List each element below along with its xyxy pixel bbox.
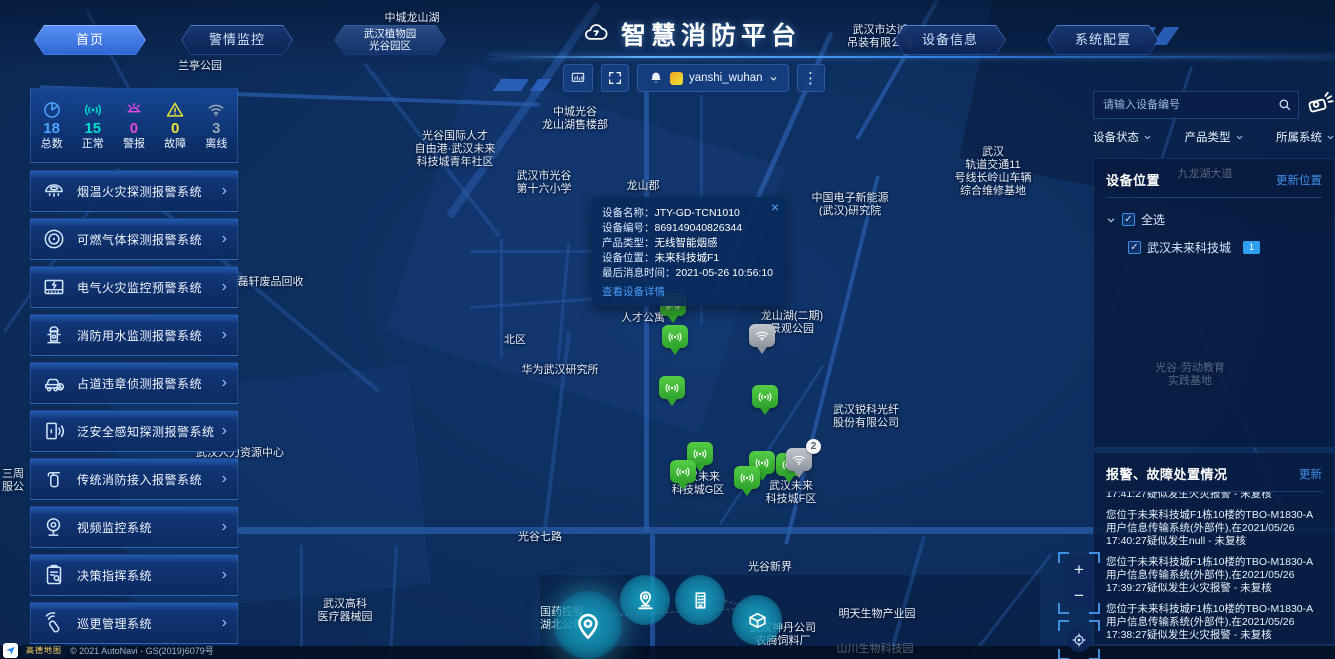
filter-dropdown-3[interactable]: 所属系统 (1276, 129, 1335, 145)
nav-button-face: 警情监控 (182, 26, 292, 54)
device-marker-online[interactable] (662, 325, 688, 348)
map-label: 三周 服公 (2, 468, 24, 494)
device-info-popup: × 设备名称：JTY-GD-TCN1010设备编号：86914904082634… (592, 197, 785, 306)
map-label: 武汉高科 医疗器械园 (318, 598, 373, 624)
building-poi[interactable] (675, 575, 725, 625)
tree-label: 全选 (1141, 211, 1165, 228)
chevron-right-icon: › (222, 183, 227, 199)
device-search-row (1093, 91, 1335, 119)
sidebar-item-5[interactable]: 占道违章侦测报警系统› (30, 362, 238, 404)
sidebar-item-7[interactable]: 传统消防接入报警系统› (30, 458, 238, 500)
device-marker-offline[interactable]: 2 (786, 448, 812, 471)
device-info-row: 设备编号：869149040826344 (602, 221, 773, 236)
sidebar-item-label: 巡更管理系统 (77, 615, 222, 632)
nav-button-2[interactable]: 警情监控 (181, 25, 293, 55)
locate-button[interactable] (1067, 628, 1091, 652)
stat-label: 正常 (74, 137, 112, 151)
alert-item[interactable]: 您位于未来科技城F1栋10楼的TBO-M1830-A用户信息传输系统(外部件),… (1106, 603, 1322, 642)
map-label: 兰亭公园 (178, 60, 222, 73)
stat-label: 故障 (156, 137, 194, 151)
chevron-right-icon: › (222, 615, 227, 631)
device-stats-panel: 18总数15正常0警报0故障3离线 (30, 88, 238, 163)
stat-value: 0 (115, 120, 153, 137)
nav-label: 武汉植物园 光谷园区 (364, 28, 417, 52)
nav-label: 设备信息 (922, 33, 978, 47)
field-value: 869149040826344 (655, 221, 743, 236)
field-value: 2021-05-26 10:56:10 (676, 266, 774, 281)
nav-button-1[interactable]: 首页 (34, 25, 146, 55)
field-label: 设备位置： (602, 251, 655, 266)
tree-label: 武汉未来科技城 (1147, 239, 1231, 256)
map-label: 柯磊轩废品回收 (227, 276, 304, 289)
sidebar-item-3[interactable]: 电气火灾监控预警系统› (30, 266, 238, 308)
camera-beacon-button[interactable] (1307, 91, 1335, 119)
sidebar-item-1[interactable]: 烟温火灾探测报警系统› (30, 170, 238, 212)
search-box (1093, 91, 1299, 119)
cluster-badge: 2 (806, 439, 821, 454)
map-road (855, 0, 938, 140)
alert-item[interactable]: 您位于未来科技城F1栋10楼的TBO-M1830-A用户信息传输系统(外部件),… (1106, 492, 1322, 501)
chevron-down-icon (1106, 215, 1116, 225)
device-info-row: 最后消息时间：2021-05-26 10:56:10 (602, 266, 773, 281)
sidebar-item-4[interactable]: 消防用水监测报警系统› (30, 314, 238, 356)
nav-button-face: 设备信息 (895, 26, 1005, 54)
sidebar-item-label: 泛安全感知探测报警系统 (77, 423, 222, 440)
amap-wordmark: 高德地图 (22, 644, 66, 657)
field-label: 产品类型： (602, 236, 655, 251)
map-label: 武汉锐科光纤 股份有限公司 (833, 404, 899, 430)
crosshair-icon (1071, 632, 1087, 648)
map-label: 武汉未来 科技城F区 (766, 480, 817, 506)
boxes-poi[interactable] (732, 595, 782, 645)
alerts-panel: 报警、故障处置情况 更新 您位于未来科技城F1栋10楼的TBO-M1830-A用… (1093, 452, 1335, 645)
map-label: 中国电子新能源 (武汉)研究院 (812, 192, 889, 218)
fullscreen-button[interactable] (601, 64, 629, 92)
page-title: 智慧消防平台 (621, 16, 801, 52)
chevron-right-icon: › (222, 423, 227, 439)
tree-row-select-all[interactable]: 全选 (1106, 211, 1322, 228)
view-device-details-link[interactable]: 查看设备详情 (602, 284, 665, 299)
filter-dropdown-1[interactable]: 设备状态 (1093, 129, 1152, 145)
nav-button-3[interactable]: 武汉植物园 光谷园区 (334, 25, 446, 55)
sidebar-item-label: 传统消防接入报警系统 (77, 471, 222, 488)
bar-chart-icon (570, 70, 586, 86)
checkbox-node[interactable] (1128, 241, 1141, 254)
panel-title: 报警、故障处置情况 (1106, 464, 1228, 483)
field-label: 设备编号： (602, 221, 655, 236)
panel-header: 设备位置 更新位置 (1106, 170, 1322, 198)
stat-label: 警报 (115, 137, 153, 151)
device-marker-online[interactable] (670, 460, 696, 483)
map-road (644, 92, 649, 532)
sidebar-item-6[interactable]: 泛安全感知探测报警系统› (30, 410, 238, 452)
nav-label: 系统配置 (1075, 33, 1131, 47)
device-info-row: 产品类型：无线智能烟感 (602, 236, 773, 251)
stat-正常: 15正常 (74, 100, 112, 151)
stat-离线: 3离线 (197, 100, 235, 151)
bell-icon (648, 70, 664, 86)
sidebar-item-label: 决策指挥系统 (77, 567, 222, 584)
signal-icon (74, 100, 112, 120)
chevron-right-icon: › (222, 231, 227, 247)
pinbase-poi[interactable] (620, 575, 670, 625)
stat-value: 15 (74, 120, 112, 137)
user-menu[interactable]: yanshi_wuhan (637, 64, 789, 92)
update-location-link[interactable]: 更新位置 (1276, 172, 1322, 188)
cloud-logo-icon (580, 21, 612, 47)
alert-list[interactable]: 您位于未来科技城F1栋10楼的TBO-M1830-A用户信息传输系统(外部件),… (1106, 492, 1322, 642)
map-toolbar: yanshi_wuhan ⋮ (563, 64, 825, 92)
chevron-down-icon (1235, 133, 1244, 142)
nav-button-face: 首页 (35, 26, 145, 54)
stat-警报: 0警报 (115, 100, 153, 151)
sensor-icon (41, 418, 67, 444)
nav-label: 警情监控 (209, 33, 265, 47)
sidebar-item-10[interactable]: 巡更管理系统› (30, 602, 238, 644)
decor-stripe (530, 79, 551, 91)
field-label: 最后消息时间： (602, 266, 676, 281)
pin-poi[interactable] (554, 591, 622, 659)
zoom-bracket: + − (1058, 552, 1100, 614)
chevron-right-icon: › (222, 567, 227, 583)
alarm-icon (115, 100, 153, 120)
sidebar-item-label: 可燃气体探测报警系统 (77, 231, 222, 248)
nav-button-4[interactable]: 设备信息 (894, 25, 1006, 55)
header-divider (488, 56, 1335, 58)
smoke-icon (41, 178, 67, 204)
patrol-icon (41, 610, 67, 636)
chevron-right-icon: › (222, 375, 227, 391)
map-road (500, 238, 503, 358)
sidebar-item-2[interactable]: 可燃气体探测报警系统› (30, 218, 238, 260)
pie-icon (33, 100, 71, 120)
alert-item[interactable]: 您位于未来科技城F1栋10楼的TBO-M1830-A用户信息传输系统(外部件),… (1106, 556, 1322, 595)
paper-plane-icon (5, 645, 16, 656)
count-badge: 1 (1243, 241, 1260, 254)
smart-fire-platform: 中城龙山湖兰亭公园武汉市达诚 吊装有限公司中城光谷 龙山湖售楼部光谷国际人才 自… (0, 0, 1335, 659)
wifi-icon (197, 100, 235, 120)
zoom-out-button[interactable]: − (1066, 587, 1092, 605)
sidebar-item-label: 烟温火灾探测报警系统 (77, 183, 222, 200)
device-marker-offline[interactable] (749, 324, 775, 347)
user-name: yanshi_wuhan (689, 72, 763, 84)
filter-dropdown-2[interactable]: 产品类型 (1185, 129, 1244, 145)
device-marker-online[interactable] (659, 376, 685, 399)
chevron-right-icon: › (222, 327, 227, 343)
amap-logo-icon (3, 643, 18, 658)
ext-icon (41, 466, 67, 492)
field-value: 无线智能烟感 (655, 236, 718, 251)
clip-icon (41, 562, 67, 588)
chevron-down-icon (769, 74, 778, 83)
stat-故障: 0故障 (156, 100, 194, 151)
more-button[interactable]: ⋮ (797, 64, 825, 92)
map-road (784, 175, 880, 545)
stat-总数: 18总数 (33, 100, 71, 151)
filter-bar: 设备状态产品类型所属系统 (1093, 129, 1335, 145)
search-icon[interactable] (1277, 97, 1292, 112)
field-value: 未来科技城F1 (655, 251, 720, 266)
panel-header: 报警、故障处置情况 更新 (1106, 464, 1322, 492)
checkbox-select-all[interactable] (1122, 213, 1135, 226)
filter-label: 所属系统 (1276, 129, 1322, 145)
field-label: 设备名称： (602, 206, 655, 221)
fullscreen-icon (607, 70, 623, 86)
map-attribution: 高德地图 © 2021 AutoNavi - GS(2019)6079号 (3, 643, 214, 658)
stat-value: 0 (156, 120, 194, 137)
map-label: 中城龙山湖 (385, 12, 440, 25)
zoom-in-button[interactable]: + (1066, 561, 1092, 579)
chevron-down-icon (1326, 133, 1335, 142)
brand: 智慧消防平台 (580, 16, 801, 52)
sidebar-item-label: 电气火灾监控预警系统 (77, 279, 222, 296)
device-info-rows: 设备名称：JTY-GD-TCN1010设备编号：869149040826344产… (602, 206, 773, 281)
chevron-right-icon: › (222, 519, 227, 535)
nav-button-face: 武汉植物园 光谷园区 (335, 26, 445, 54)
chevron-right-icon: › (222, 471, 227, 487)
tree-row-node[interactable]: 武汉未来科技城 1 (1106, 239, 1322, 256)
device-marker-online[interactable] (752, 385, 778, 408)
sidebar-item-9[interactable]: 决策指挥系统› (30, 554, 238, 596)
device-info-row: 设备位置：未来科技城F1 (602, 251, 773, 266)
stat-label: 离线 (197, 137, 235, 151)
cam-icon (41, 514, 67, 540)
stat-value: 18 (33, 120, 71, 137)
nav-label: 首页 (76, 33, 104, 47)
hydrant-icon (41, 322, 67, 348)
epanel-icon (41, 274, 67, 300)
sidebar-item-label: 视频监控系统 (77, 519, 222, 536)
map-zoom-controls: + − (1058, 552, 1100, 659)
locate-bracket (1058, 620, 1100, 659)
warn-icon (156, 100, 194, 120)
map-label: 光谷新界 (748, 561, 792, 574)
avatar (670, 72, 683, 85)
stat-label: 总数 (33, 137, 71, 151)
gas-icon (41, 226, 67, 252)
copyright-text: © 2021 AutoNavi - GS(2019)6079号 (70, 644, 214, 657)
refresh-alerts-link[interactable]: 更新 (1299, 466, 1322, 482)
zoom-pill: + − (1066, 557, 1092, 609)
sidebar-item-8[interactable]: 视频监控系统› (30, 506, 238, 548)
chevron-right-icon: › (222, 279, 227, 295)
device-info-row: 设备名称：JTY-GD-TCN1010 (602, 206, 773, 221)
nav-button-face: 系统配置 (1048, 26, 1158, 54)
close-icon[interactable]: × (771, 200, 779, 214)
sidebar-item-label: 消防用水监测报警系统 (77, 327, 222, 344)
system-sidebar: 烟温火灾探测报警系统›可燃气体探测报警系统›电气火灾监控预警系统›消防用水监测报… (30, 170, 238, 650)
nav-button-5[interactable]: 系统配置 (1047, 25, 1159, 55)
device-location-panel: 设备位置 更新位置 全选 武汉未来科技城 1 (1093, 158, 1335, 448)
filter-label: 产品类型 (1185, 129, 1231, 145)
filter-label: 设备状态 (1093, 129, 1139, 145)
statistics-button[interactable] (563, 64, 593, 92)
panel-title: 设备位置 (1106, 170, 1160, 189)
location-tree: 全选 武汉未来科技城 1 (1106, 211, 1322, 256)
field-value: JTY-GD-TCN1010 (655, 206, 740, 221)
car-icon (41, 370, 67, 396)
device-marker-online[interactable] (734, 466, 760, 489)
alert-item[interactable]: 您位于未来科技城F1栋10楼的TBO-M1830-A用户信息传输系统(外部件),… (1106, 509, 1322, 548)
stat-value: 3 (197, 120, 235, 137)
sidebar-item-label: 占道违章侦测报警系统 (77, 375, 222, 392)
chevron-down-icon (1143, 133, 1152, 142)
search-input[interactable] (1093, 91, 1299, 119)
map-road (300, 545, 303, 659)
